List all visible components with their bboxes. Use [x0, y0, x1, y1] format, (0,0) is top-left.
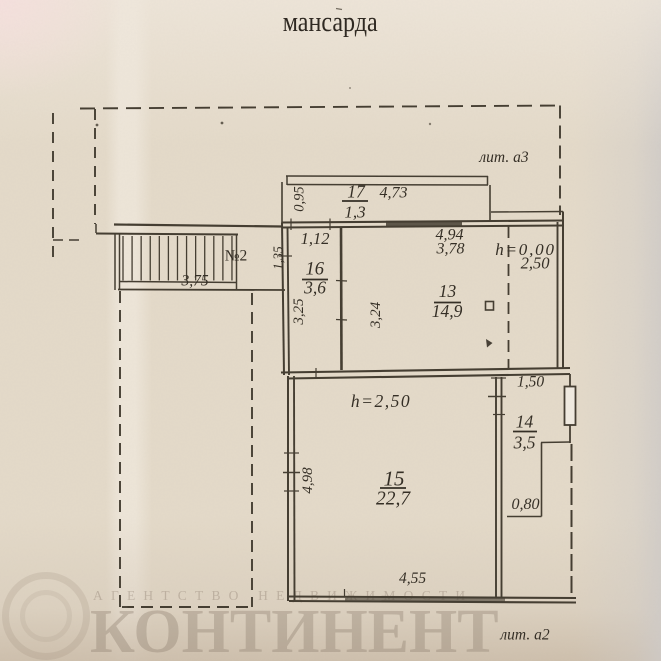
- svg-text:15: 15: [384, 467, 405, 491]
- svg-text:1,35: 1,35: [270, 246, 285, 270]
- svg-text:1,50: 1,50: [517, 374, 544, 391]
- svg-text:4,73: 4,73: [380, 185, 408, 202]
- svg-text:2,50: 2,50: [521, 254, 551, 273]
- svg-text:лит. а3: лит. а3: [478, 149, 528, 166]
- svg-text:14,9: 14,9: [432, 301, 463, 321]
- svg-text:13: 13: [439, 281, 457, 301]
- svg-text:4,55: 4,55: [399, 570, 426, 587]
- svg-text:4,98: 4,98: [300, 467, 316, 494]
- svg-text:0,80: 0,80: [512, 496, 540, 513]
- svg-text:0,95: 0,95: [292, 186, 308, 211]
- svg-text:14: 14: [516, 412, 534, 432]
- svg-text:лит. а2: лит. а2: [499, 627, 549, 644]
- svg-text:16: 16: [305, 260, 324, 280]
- svg-text:№2: №2: [225, 248, 248, 265]
- svg-text:3,5: 3,5: [513, 433, 536, 453]
- svg-text:3,78: 3,78: [436, 241, 465, 258]
- svg-text:22,7: 22,7: [376, 489, 411, 510]
- svg-text:3,75: 3,75: [180, 273, 208, 290]
- svg-text:1,3: 1,3: [344, 203, 365, 222]
- svg-text:1,12: 1,12: [301, 229, 330, 248]
- svg-text:17: 17: [347, 182, 366, 202]
- svg-text:3,6: 3,6: [303, 278, 326, 298]
- svg-text:h=2,50: h=2,50: [351, 391, 411, 411]
- svg-text:3,24: 3,24: [368, 301, 384, 329]
- svg-text:3,25: 3,25: [291, 298, 307, 326]
